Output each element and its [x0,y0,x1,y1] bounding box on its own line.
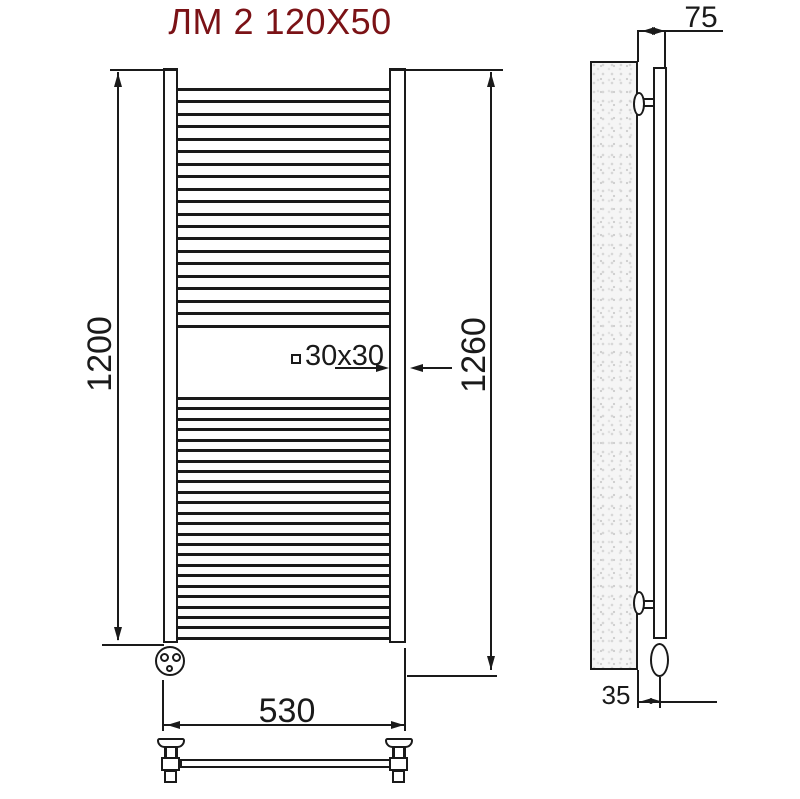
dim-1200-label: 1200 [85,309,115,399]
wall-section [590,61,638,670]
rung-line [177,480,390,483]
bracket-plate-icon [633,92,645,116]
element-pin-left-icon [160,653,169,662]
rung-line [177,491,390,494]
rung-line [177,543,390,546]
rung-line [177,553,390,556]
rung-line [177,225,390,228]
rail-tube-side [653,67,667,639]
upper-rungs [177,88,390,330]
rung-line [177,200,390,203]
rung-line [177,175,390,178]
rung-line [177,237,390,240]
dim-1260-arrow-up-icon [487,70,495,87]
bracket-foot [392,770,405,783]
rung-line [177,138,390,141]
rung-line [177,250,390,253]
dim-1260-label: 1260 [459,310,489,400]
dim-35-arrow-right-icon [650,698,663,704]
rung-line [177,213,390,216]
rung-line [177,300,390,303]
dim-75-arrow-right-icon [652,27,668,35]
rung-line [177,533,390,536]
rung-line [177,616,390,619]
rung-line [177,262,390,265]
bracket-block [389,757,408,771]
rung-line [177,470,390,473]
bracket-block [161,757,180,771]
rung-line [177,626,390,629]
dim-530-arrow-left-icon [164,721,180,729]
dim-35-label: 35 [596,682,636,708]
bracket-plate-icon [633,591,645,615]
rung-line [177,512,390,515]
mounting-bar [180,759,391,768]
rung-line [177,125,390,128]
technical-drawing-canvas: ЛМ 2 120X50 1200 1260 3 [0,0,800,799]
rung-line [177,564,390,567]
rung-line [177,150,390,153]
rung-line [177,418,390,421]
rung-line [177,428,390,431]
rung-line [177,113,390,116]
rung-line [177,312,390,315]
rung-line [177,460,390,463]
rung-line [177,287,390,290]
element-pin-bottom-icon [166,665,173,672]
rung-line [177,585,390,588]
rung-line [177,574,390,577]
dim-1260-ext-bottom [407,675,497,677]
rung-line [177,637,390,640]
square-profile-icon [291,354,301,364]
rung-line [177,397,390,400]
rung-line [177,595,390,598]
rung-line [177,325,390,328]
rung-line [177,188,390,191]
rung-line [177,275,390,278]
dim-1200-arrow-up-icon [114,70,122,87]
rung-line [177,100,390,103]
dim-75-label: 75 [676,3,726,33]
rung-line [177,449,390,452]
dim-1200-arrow-down-icon [114,627,122,644]
dim-1200-ext-bottom [102,644,164,646]
dim-75-ext-right [664,30,666,68]
dim-530-ext-right [404,648,406,731]
rung-line [177,88,390,91]
profile-arrow-right-icon [376,364,392,372]
dim-530-arrow-right-icon [391,721,407,729]
profile-arrow-left-line [420,367,452,369]
dim-1260-arrow-down-icon [487,656,495,673]
rung-line [177,606,390,609]
rung-line [177,501,390,504]
left-post [163,68,178,643]
profile-arrow-right-line [335,367,377,369]
electric-element-side-icon [650,643,669,677]
rung-line [177,407,390,410]
element-pin-right-icon [172,653,181,662]
rung-line [177,439,390,442]
lower-rungs [177,397,390,641]
dim-530-label: 530 [237,694,337,728]
drawing-title: ЛМ 2 120X50 [130,4,430,40]
right-post [389,68,406,643]
rung-line [177,522,390,525]
rung-line [177,163,390,166]
bracket-foot [164,770,177,783]
